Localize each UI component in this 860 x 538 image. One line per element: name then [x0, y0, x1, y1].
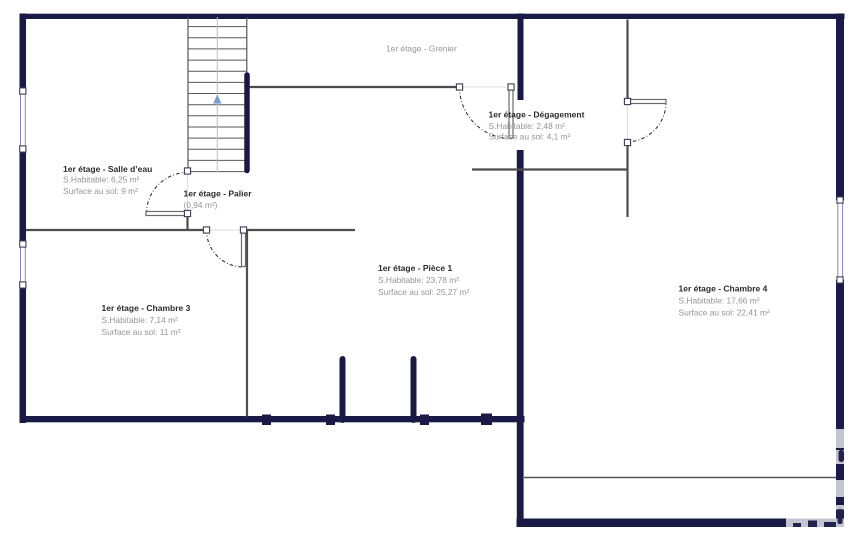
- svg-text:1er étage - Chambre 4: 1er étage - Chambre 4: [679, 284, 768, 294]
- svg-text:(0,94 m²): (0,94 m²): [184, 200, 218, 210]
- svg-text:S.Habitable: 17,66 m²: S.Habitable: 17,66 m²: [679, 296, 760, 306]
- svg-text:1er étage - Dégagement: 1er étage - Dégagement: [489, 110, 585, 120]
- svg-text:1er étage - Pièce 1: 1er étage - Pièce 1: [378, 263, 452, 273]
- svg-text:1er étage - Salle d’eau: 1er étage - Salle d’eau: [63, 164, 152, 174]
- svg-text:Surface au sol: 22,41 m²: Surface au sol: 22,41 m²: [679, 308, 770, 318]
- svg-text:S.Habitable: 6,25 m²: S.Habitable: 6,25 m²: [63, 175, 140, 185]
- svg-text:Surface au sol: 25,27 m²: Surface au sol: 25,27 m²: [378, 287, 469, 297]
- svg-text:Surface au sol: 4,1 m²: Surface au sol: 4,1 m²: [489, 132, 571, 142]
- svg-text:1er étage - Palier: 1er étage - Palier: [184, 189, 253, 199]
- svg-text:Surface au sol: 11 m²: Surface au sol: 11 m²: [102, 327, 181, 337]
- svg-text:S.Habitable: 2,48 m²: S.Habitable: 2,48 m²: [489, 121, 566, 131]
- svg-text:1er étage - Chambre 3: 1er étage - Chambre 3: [102, 303, 191, 313]
- svg-text:Surface au sol: 9 m²: Surface au sol: 9 m²: [63, 186, 138, 196]
- svg-text:1er étage - Grenier: 1er étage - Grenier: [386, 44, 457, 54]
- svg-text:S.Habitable: 7,14 m²: S.Habitable: 7,14 m²: [102, 315, 179, 325]
- svg-text:S.Habitable: 23,78 m²: S.Habitable: 23,78 m²: [378, 275, 459, 285]
